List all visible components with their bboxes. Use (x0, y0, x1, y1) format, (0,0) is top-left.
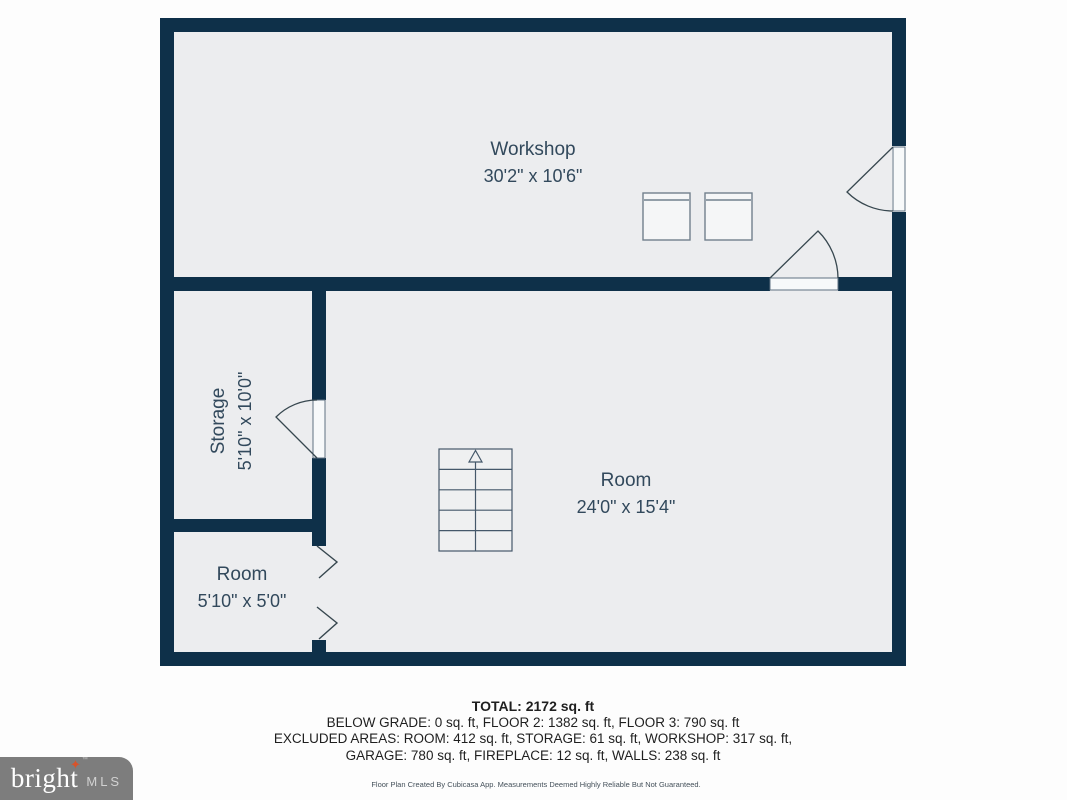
room-main-label: Room 24'0" x 15'4" (426, 469, 826, 519)
workshop-label: Workshop 30'2" x 10'6" (283, 138, 783, 188)
logo-brand-text: bright ✦ ™ (11, 765, 79, 792)
summary-line: BELOW GRADE: 0 sq. ft, FLOOR 2: 1382 sq.… (183, 715, 883, 732)
room-small-label: Room 5'10" x 5'0" (142, 563, 342, 613)
storage-label: Storage 5'10" x 10'0" (207, 321, 259, 521)
star-icon: ✦ (70, 758, 81, 771)
room-dimensions: 24'0" x 15'4" (426, 496, 826, 519)
wall-outer-top (160, 18, 906, 32)
floor-plan-page: Workshop 30'2" x 10'6" Storage 5'10" x 1… (0, 0, 1067, 800)
workshop-right-door-leaf (893, 147, 905, 211)
area-summary: TOTAL: 2172 sq. ft BELOW GRADE: 0 sq. ft… (183, 698, 883, 764)
wall-outer-bottom (160, 652, 906, 666)
room-name: Storage (207, 321, 232, 521)
wall-outer-right-upper (892, 18, 906, 146)
wall-outer-right-lower (892, 212, 906, 666)
storage-door-leaf (313, 400, 325, 458)
summary-line: EXCLUDED AREAS: ROOM: 412 sq. ft, STORAG… (183, 731, 883, 748)
room-dimensions: 5'10" x 10'0" (234, 321, 257, 521)
workshop-bottom-door-leaf (770, 278, 838, 290)
logo-wordmark: bright (11, 763, 79, 793)
logo-suffix-text: MLS (86, 768, 122, 789)
trademark-symbol: ™ (82, 757, 89, 763)
disclaimer-text: Floor Plan Created By Cubicasa App. Meas… (186, 780, 886, 789)
total-area: TOTAL: 2172 sq. ft (183, 698, 883, 715)
room-name: Room (426, 469, 826, 494)
room-name: Workshop (283, 138, 783, 163)
floor-area (174, 32, 892, 652)
wall-divider-stub (312, 640, 326, 652)
wall-divider-middle (312, 458, 326, 546)
wall-workshop-bottom-right (838, 277, 892, 291)
room-name: Room (142, 563, 342, 588)
room-dimensions: 5'10" x 5'0" (142, 590, 342, 613)
room-dimensions: 30'2" x 10'6" (283, 165, 783, 188)
summary-line: GARAGE: 780 sq. ft, FIREPLACE: 12 sq. ft… (183, 748, 883, 765)
wall-divider-upper (312, 291, 326, 400)
floor-plan-drawing (0, 0, 1067, 800)
wall-workshop-bottom-left (174, 277, 770, 291)
bright-mls-logo: bright ✦ ™ MLS (0, 757, 133, 800)
